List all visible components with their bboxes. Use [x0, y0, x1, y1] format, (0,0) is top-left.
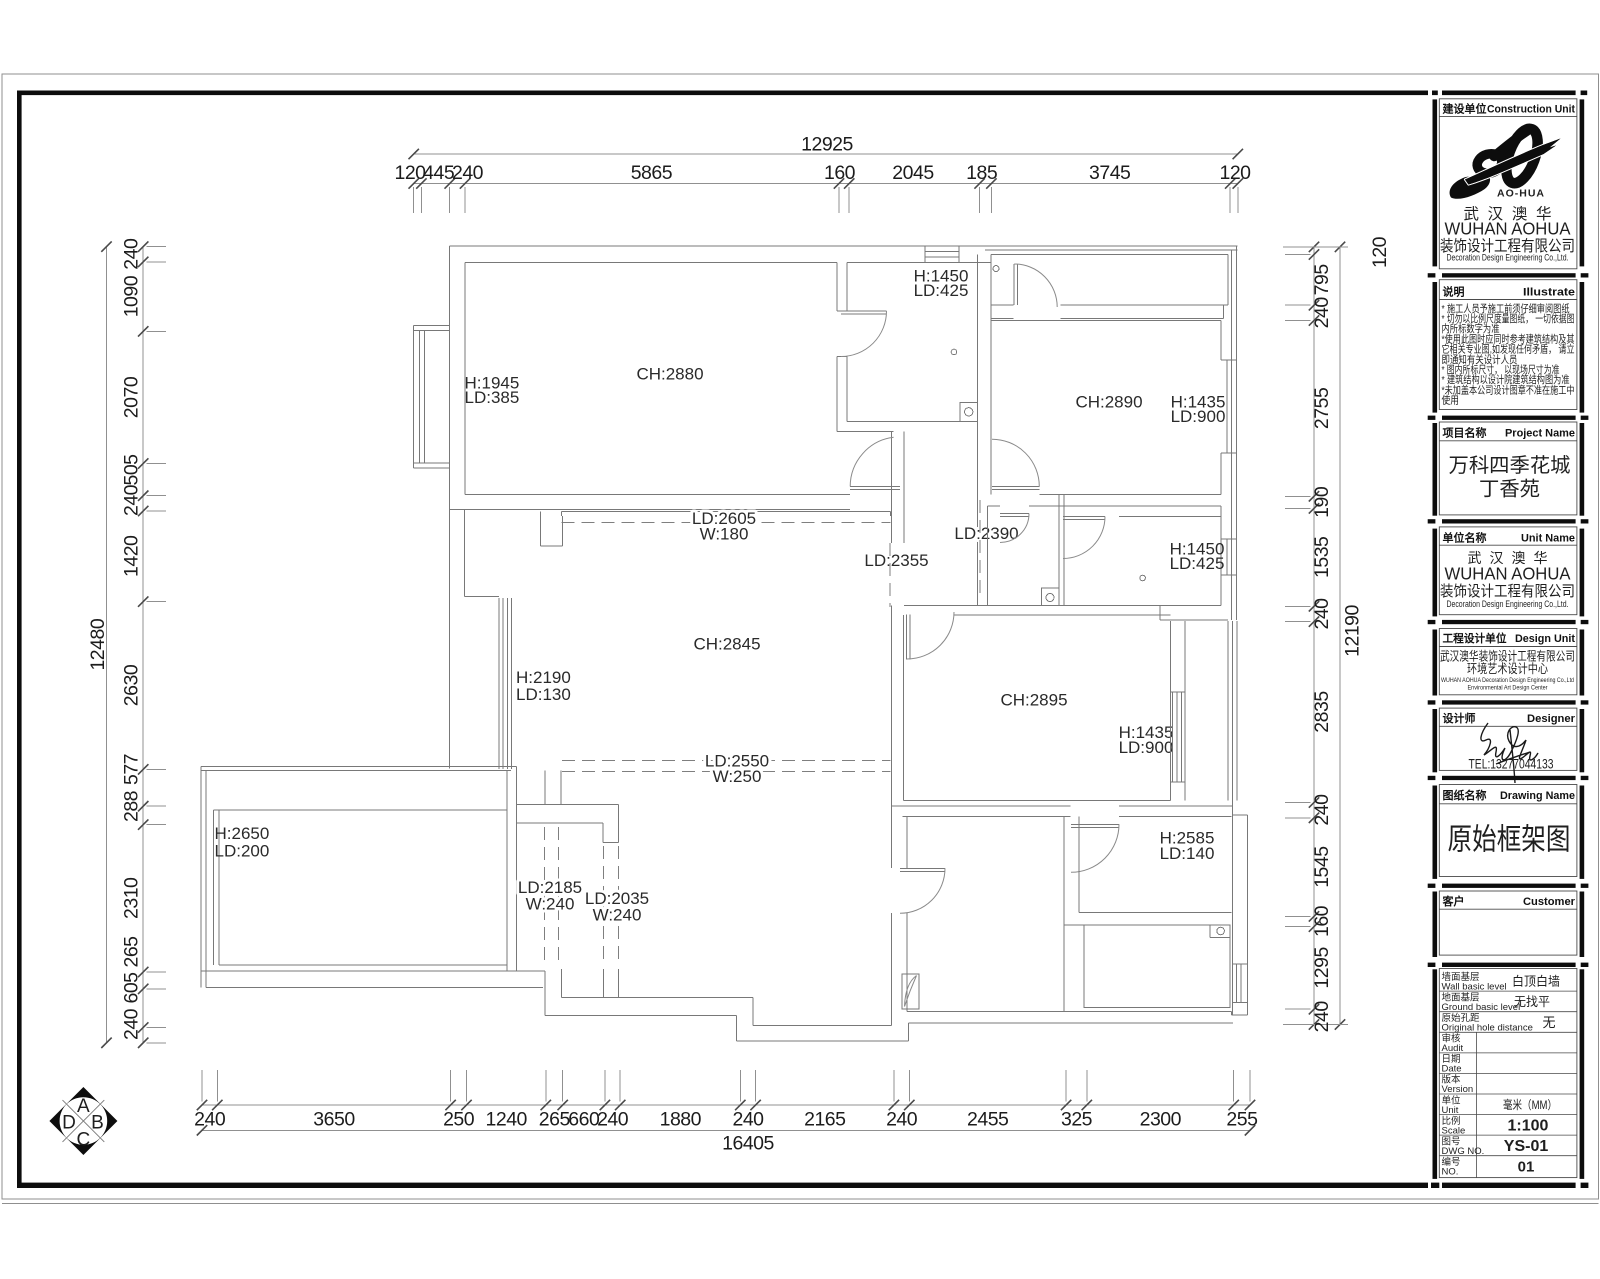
svg-text:W:250: W:250 — [713, 767, 762, 786]
svg-text:240: 240 — [732, 1109, 764, 1131]
svg-text:LD:385: LD:385 — [465, 388, 520, 407]
svg-text:Decoration Design Engineering: Decoration Design Engineering Co.,Ltd. — [1447, 599, 1569, 609]
svg-text:丁香苑: 丁香苑 — [1479, 477, 1540, 500]
svg-text:660: 660 — [568, 1109, 600, 1131]
svg-text:WUHAN AOHUA: WUHAN AOHUA — [1445, 218, 1571, 238]
svg-text:LD:425: LD:425 — [1170, 554, 1225, 573]
svg-text:LD:900: LD:900 — [1119, 738, 1174, 757]
svg-text:240: 240 — [194, 1109, 226, 1131]
svg-text:无: 无 — [1542, 1015, 1555, 1030]
svg-text:265: 265 — [121, 936, 143, 968]
svg-text:LD:140: LD:140 — [1160, 844, 1215, 863]
svg-text:DWG NO.: DWG NO. — [1442, 1146, 1485, 1157]
svg-text:LD:425: LD:425 — [914, 281, 969, 300]
svg-text:2310: 2310 — [121, 877, 143, 919]
svg-text:说明: 说明 — [1443, 285, 1465, 299]
svg-text:LD:2390: LD:2390 — [954, 524, 1018, 543]
svg-text:2070: 2070 — [121, 376, 143, 418]
svg-text:3650: 3650 — [313, 1109, 355, 1131]
svg-text:120: 120 — [1369, 236, 1391, 268]
svg-text:项目名称: 项目名称 — [1443, 426, 1487, 440]
svg-text:240: 240 — [1311, 297, 1333, 329]
svg-text:Version: Version — [1442, 1084, 1474, 1095]
svg-text:1240: 1240 — [486, 1109, 528, 1131]
svg-text:LD:200: LD:200 — [215, 842, 270, 861]
svg-text:W:240: W:240 — [593, 906, 642, 925]
svg-text:190: 190 — [1311, 486, 1333, 518]
svg-text:使用: 使用 — [1442, 394, 1460, 407]
svg-text:TEL:13277044133: TEL:13277044133 — [1469, 756, 1554, 771]
svg-text:795: 795 — [1311, 264, 1333, 296]
svg-text:Designer: Designer — [1527, 713, 1576, 725]
svg-text:Scale: Scale — [1442, 1125, 1466, 1136]
svg-text:12480: 12480 — [87, 618, 109, 670]
svg-text:A: A — [77, 1096, 90, 1117]
svg-text:1420: 1420 — [121, 535, 143, 577]
svg-text:240: 240 — [121, 1008, 143, 1040]
svg-text:240: 240 — [597, 1109, 629, 1131]
svg-text:万科四季花城: 万科四季花城 — [1449, 454, 1571, 477]
svg-text:Project Name: Project Name — [1505, 428, 1575, 440]
svg-text:2045: 2045 — [892, 162, 934, 184]
svg-text:*未加盖本公司设计图章不准在施工中: *未加盖本公司设计图章不准在施工中 — [1442, 383, 1575, 396]
svg-text:605: 605 — [121, 972, 143, 1004]
svg-text:CH:2845: CH:2845 — [693, 635, 760, 654]
svg-text:2630: 2630 — [121, 664, 143, 706]
svg-text:240: 240 — [886, 1109, 918, 1131]
svg-text:12925: 12925 — [801, 134, 853, 156]
svg-text:1090: 1090 — [121, 275, 143, 317]
svg-text:YS-01: YS-01 — [1504, 1138, 1549, 1155]
svg-text:2455: 2455 — [967, 1109, 1009, 1131]
svg-text:AO-HUA: AO-HUA — [1497, 188, 1545, 200]
svg-text:客户: 客户 — [1442, 894, 1465, 908]
svg-text:Illustrate: Illustrate — [1523, 287, 1575, 299]
svg-text:Date: Date — [1442, 1064, 1462, 1075]
svg-text:D: D — [62, 1113, 76, 1134]
svg-text:2835: 2835 — [1311, 691, 1333, 733]
svg-text:设计师: 设计师 — [1443, 711, 1476, 725]
svg-text:B: B — [91, 1113, 104, 1134]
svg-text:Ground basic level: Ground basic level — [1442, 1002, 1521, 1013]
svg-text:LD:900: LD:900 — [1171, 407, 1226, 426]
svg-text:Audit: Audit — [1442, 1043, 1464, 1054]
svg-text:工程设计单位: 工程设计单位 — [1443, 631, 1507, 645]
svg-text:Unit Name: Unit Name — [1521, 532, 1575, 544]
svg-text:CH:2880: CH:2880 — [636, 365, 703, 384]
svg-text:单位名称: 单位名称 — [1443, 530, 1487, 544]
svg-text:265: 265 — [539, 1109, 571, 1131]
svg-text:288: 288 — [121, 791, 143, 822]
svg-text:505: 505 — [121, 454, 143, 486]
svg-text:250: 250 — [443, 1109, 475, 1131]
svg-text:NO.: NO. — [1442, 1167, 1459, 1178]
svg-text:W:180: W:180 — [700, 525, 749, 544]
svg-text:Original hole distance: Original hole distance — [1442, 1023, 1533, 1034]
svg-text:CH:2890: CH:2890 — [1075, 393, 1142, 412]
svg-text:1:100: 1:100 — [1508, 1117, 1549, 1134]
svg-text:240: 240 — [121, 484, 143, 516]
svg-text:Design Unit: Design Unit — [1515, 633, 1575, 645]
svg-text:WUHAN AOHUA Decoration Design: WUHAN AOHUA Decoration Design Engineerin… — [1441, 677, 1574, 684]
svg-text:240: 240 — [1311, 1001, 1333, 1033]
svg-text:255: 255 — [1226, 1109, 1258, 1131]
svg-text:图纸名称: 图纸名称 — [1443, 788, 1487, 802]
svg-text:12190: 12190 — [1342, 604, 1364, 656]
svg-text:2755: 2755 — [1311, 387, 1333, 429]
svg-text:建设单位: 建设单位 — [1443, 101, 1487, 115]
svg-text:445: 445 — [423, 162, 455, 184]
svg-text:WUHAN AOHUA: WUHAN AOHUA — [1445, 564, 1571, 584]
svg-text:577: 577 — [121, 754, 143, 785]
svg-text:5865: 5865 — [631, 162, 673, 184]
svg-text:Wall basic level: Wall basic level — [1442, 981, 1507, 992]
svg-text:1880: 1880 — [660, 1109, 702, 1131]
svg-text:环境艺术设计中心: 环境艺术设计中心 — [1467, 661, 1548, 676]
svg-text:240: 240 — [121, 238, 143, 270]
svg-text:2165: 2165 — [804, 1109, 846, 1131]
svg-text:LD:2355: LD:2355 — [864, 551, 928, 570]
svg-text:Decoration Design Engineering: Decoration Design Engineering Co.,Ltd. — [1447, 252, 1569, 262]
svg-text:120: 120 — [1219, 162, 1251, 184]
svg-text:2300: 2300 — [1140, 1109, 1182, 1131]
svg-text:无找平: 无找平 — [1514, 995, 1550, 1009]
svg-text:240: 240 — [1311, 598, 1333, 630]
svg-text:白顶白墙: 白顶白墙 — [1512, 973, 1560, 988]
svg-text:原始框架图: 原始框架图 — [1448, 824, 1571, 857]
svg-text:Construction Unit: Construction Unit — [1487, 103, 1575, 115]
svg-text:W:240: W:240 — [526, 895, 575, 914]
svg-text:120: 120 — [394, 162, 426, 184]
svg-text:3745: 3745 — [1089, 162, 1131, 184]
svg-text:185: 185 — [966, 162, 998, 184]
svg-text:1545: 1545 — [1311, 846, 1333, 888]
svg-text:Drawing Name: Drawing Name — [1500, 790, 1575, 802]
svg-text:160: 160 — [824, 162, 856, 184]
svg-text:H:2650: H:2650 — [215, 824, 270, 843]
svg-text:16405: 16405 — [722, 1133, 774, 1155]
svg-text:240: 240 — [1311, 794, 1333, 826]
svg-text:240: 240 — [452, 162, 484, 184]
svg-text:325: 325 — [1061, 1109, 1093, 1131]
svg-text:Environmental Art Design Cente: Environmental Art Design Center — [1468, 685, 1549, 692]
svg-text:装饰设计工程有限公司: 装饰设计工程有限公司 — [1440, 583, 1575, 600]
svg-text:Unit: Unit — [1442, 1105, 1459, 1116]
svg-text:1535: 1535 — [1311, 536, 1333, 578]
svg-text:毫米（MM）: 毫米（MM） — [1503, 1097, 1557, 1112]
svg-text:C: C — [77, 1130, 91, 1151]
svg-text:Customer: Customer — [1523, 896, 1576, 908]
svg-text:CH:2895: CH:2895 — [1000, 691, 1067, 710]
svg-text:LD:130: LD:130 — [516, 685, 571, 704]
svg-text:01: 01 — [1518, 1158, 1535, 1175]
svg-text:1295: 1295 — [1311, 947, 1333, 989]
svg-text:160: 160 — [1311, 905, 1333, 937]
